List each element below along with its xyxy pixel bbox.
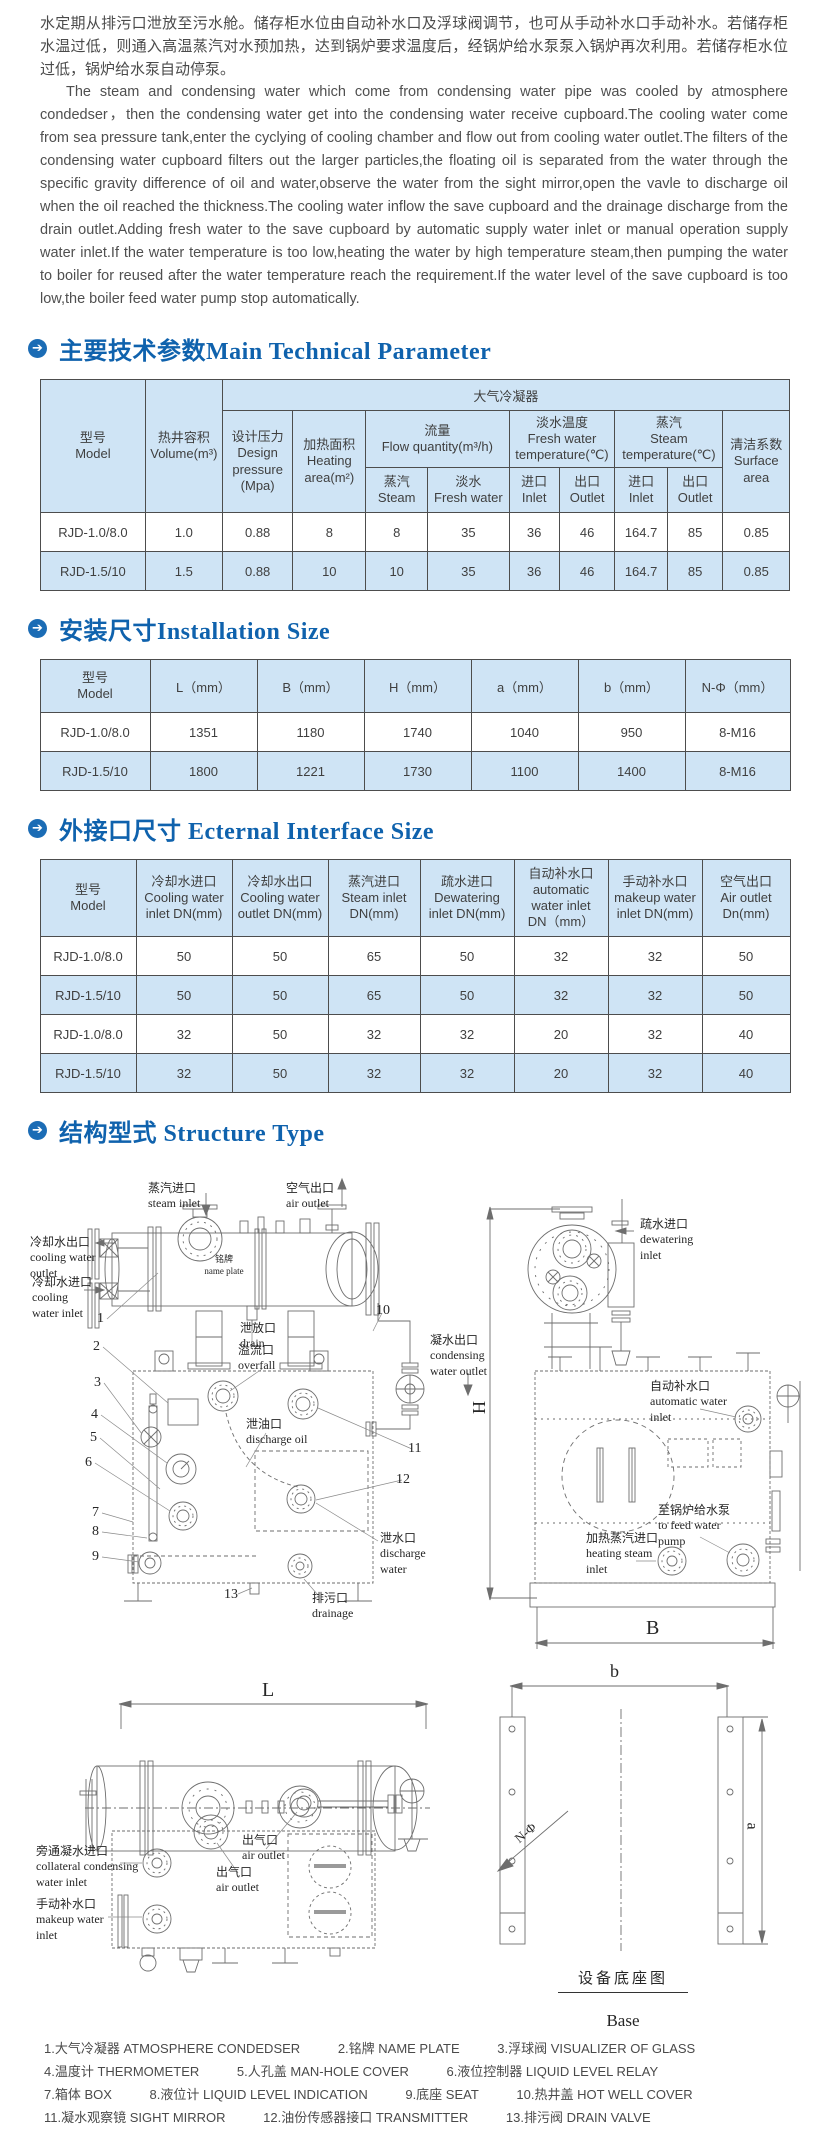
cell: 50 — [420, 937, 514, 976]
table-row: RJD-1.0/8.0 1.0 0.88 8 8 35 36 46 164.7 … — [41, 513, 790, 552]
technical-parameter-table: 型号 Model 热井容积 Volume(m³) 大气冷凝器 设计压力 Desi… — [40, 379, 790, 591]
header-cell: 蒸汽 Steam temperature(℃) — [615, 411, 723, 468]
cell: 20 — [514, 1054, 608, 1093]
structure-line-drawing — [0, 1151, 830, 2027]
legend-line: 7.箱体 BOX 8.液位计 LIQUID LEVEL INDICATION 9… — [44, 2083, 790, 2106]
header-cell: N-Φ（mm） — [685, 660, 790, 713]
cell: 40 — [702, 1015, 790, 1054]
header-cell: 淡水温度 Fresh water temperature(℃) — [509, 411, 615, 468]
section-title: 外接口尺寸 Ecternal Interface Size — [59, 811, 434, 846]
structure-drawings: 蒸汽进口 steam inlet 空气出口 air outlet 冷却水出口 c… — [0, 1151, 830, 2027]
part-number-11: 11 — [408, 1441, 421, 1457]
base-caption: 设备底座图 Base — [558, 1955, 688, 2047]
label-discharge-water: 泄水口 discharge water — [380, 1531, 452, 1577]
section-title: 主要技术参数Main Technical Parameter — [59, 331, 491, 366]
cell: 8-M16 — [685, 752, 790, 791]
cell: 32 — [136, 1054, 232, 1093]
cell: RJD-1.5/10 — [40, 752, 150, 791]
cell: 40 — [702, 1054, 790, 1093]
label-automatic-water-inlet: 自动补水口 automatic water inlet — [650, 1379, 760, 1425]
cell: 1221 — [257, 752, 364, 791]
part-number-7: 7 — [92, 1505, 99, 1521]
cell: 46 — [559, 513, 615, 552]
legend-item: 5.人孔盖 MAN-HOLE COVER — [237, 2064, 409, 2079]
cell: 50 — [232, 976, 328, 1015]
cell: 8 — [293, 513, 366, 552]
label-air-outlet-c1: 出气口 air outlet — [242, 1833, 285, 1864]
header-cell: 型号 Model — [40, 860, 136, 937]
label-air-outlet-c2: 出气口 air outlet — [216, 1865, 259, 1896]
header-cell: 出口 Outlet — [667, 468, 723, 513]
cell: 35 — [428, 513, 509, 552]
label-discharge-oil: 泄油口 discharge oil — [246, 1417, 307, 1448]
table-row: RJD-1.5/10 50 50 65 50 32 32 50 — [40, 976, 790, 1015]
cell: 32 — [608, 1015, 702, 1054]
label-overfall: 溢流口 overfall — [238, 1343, 275, 1374]
legend-item: 1.大气冷凝器 ATMOSPHERE CONDEDSER — [44, 2041, 300, 2056]
header-cell: 进口 Inlet — [509, 468, 559, 513]
header-cell: 型号 Model — [40, 660, 150, 713]
dimension-b: b — [610, 1661, 619, 1682]
intro-paragraph-en: The steam and condensing water which com… — [40, 81, 788, 311]
header-cell: 冷却水出口 Cooling water outlet DN(mm) — [232, 860, 328, 937]
section-heading-technical-parameter: ➔ 主要技术参数Main Technical Parameter — [28, 331, 830, 365]
legend-item: 6.液位控制器 LIQUID LEVEL RELAY — [446, 2064, 658, 2079]
section-heading-installation-size: ➔ 安装尺寸Installation Size — [28, 611, 830, 645]
cell: 10 — [293, 552, 366, 591]
part-number-1: 1 — [97, 1311, 104, 1327]
header-cell: 自动补水口 automatic water inlet DN（mm） — [514, 860, 608, 937]
cell: 1180 — [257, 713, 364, 752]
table-row: 型号 Model L（mm） B（mm） H（mm） a（mm） b（mm） N… — [40, 660, 790, 713]
part-number-2: 2 — [93, 1339, 100, 1355]
cell: 1.0 — [145, 513, 222, 552]
legend-line: 11.凝水观察镜 SIGHT MIRROR 12.油份传感器接口 TRANSMI… — [44, 2106, 790, 2129]
cell: 32 — [608, 1054, 702, 1093]
legend-item: 10.热井盖 HOT WELL COVER — [516, 2087, 692, 2102]
cell: RJD-1.0/8.0 — [40, 1015, 136, 1054]
cell: 35 — [428, 552, 509, 591]
cell: 50 — [136, 976, 232, 1015]
cell: 1730 — [364, 752, 471, 791]
intro-section: 水定期从排污口泄放至污水舱。储存柜水位由自动补水口及浮球阀调节，也可从手动补水口… — [0, 0, 830, 311]
cell: 50 — [232, 937, 328, 976]
header-cell: 蒸汽 Steam — [366, 468, 428, 513]
cell: 1351 — [150, 713, 257, 752]
table-row: RJD-1.0/8.0 50 50 65 50 32 32 50 — [40, 937, 790, 976]
cell: 0.88 — [222, 552, 293, 591]
label-dewatering-inlet: 疏水进口 dewatering inlet — [640, 1217, 724, 1263]
base-caption-cn: 设备底座图 — [558, 1970, 688, 1992]
header-cell: L（mm） — [150, 660, 257, 713]
dimension-B: B — [646, 1617, 659, 1640]
cell: 0.88 — [222, 513, 293, 552]
cell: 85 — [667, 552, 723, 591]
cell: 20 — [514, 1015, 608, 1054]
header-cell: 进口 Inlet — [615, 468, 667, 513]
legend-item: 13.排污阀 DRAIN VALVE — [506, 2110, 651, 2125]
dimension-H: H — [468, 1401, 489, 1414]
label-collateral-condensing-water-inlet: 旁通凝水进口 collateral condensing water inlet — [36, 1844, 171, 1890]
legend-item: 7.箱体 BOX — [44, 2087, 112, 2102]
parts-legend: 1.大气冷凝器 ATMOSPHERE CONDEDSER 2.铭牌 NAME P… — [44, 2037, 790, 2129]
header-cell: 大气冷凝器 — [222, 380, 789, 411]
section-heading-structure-type: ➔ 结构型式 Structure Type — [28, 1113, 830, 1147]
header-cell: H（mm） — [364, 660, 471, 713]
cell: 32 — [328, 1015, 420, 1054]
cell: 32 — [514, 937, 608, 976]
table-row: RJD-1.5/10 32 50 32 32 20 32 40 — [40, 1054, 790, 1093]
part-number-5: 5 — [90, 1430, 97, 1446]
cell: 32 — [136, 1015, 232, 1054]
arrow-circle-icon: ➔ — [28, 819, 47, 838]
legend-item: 11.凝水观察镜 SIGHT MIRROR — [44, 2110, 226, 2125]
label-heating-steam-inlet: 加热蒸汽进口 heating steam inlet — [586, 1531, 681, 1577]
cell: 85 — [667, 513, 723, 552]
cell: 32 — [420, 1054, 514, 1093]
cell: 0.85 — [723, 552, 790, 591]
cell: 950 — [578, 713, 685, 752]
header-cell: 蒸汽进口 Steam inlet DN(mm) — [328, 860, 420, 937]
cell: RJD-1.0/8.0 — [41, 513, 146, 552]
header-cell: 设计压力 Design pressure (Mpa) — [222, 411, 293, 513]
header-cell: a（mm） — [471, 660, 578, 713]
table-row: 型号 Model 冷却水进口 Cooling water inlet DN(mm… — [40, 860, 790, 937]
catalog-page: { "intro": { "cn": "水定期从排污口泄放至污水舱。储存柜水位由… — [0, 0, 830, 2076]
legend-item: 9.底座 SEAT — [405, 2087, 478, 2102]
legend-item: 8.液位计 LIQUID LEVEL INDICATION — [150, 2087, 368, 2102]
cell: 1100 — [471, 752, 578, 791]
cell: 32 — [420, 1015, 514, 1054]
header-cell: 空气出口 Air outlet Dn(mm) — [702, 860, 790, 937]
cell: 32 — [608, 976, 702, 1015]
header-cell: 疏水进口 Dewatering inlet DN(mm) — [420, 860, 514, 937]
header-cell: 手动补水口 makeup water inlet DN(mm) — [608, 860, 702, 937]
header-cell: B（mm） — [257, 660, 364, 713]
part-number-6: 6 — [85, 1455, 92, 1471]
label-drainage: 排污口 drainage — [312, 1591, 353, 1622]
header-cell: 型号 Model — [41, 380, 146, 513]
label-steam-inlet: 蒸汽进口 steam inlet — [148, 1181, 200, 1212]
cell: 46 — [559, 552, 615, 591]
part-number-12: 12 — [396, 1472, 410, 1488]
legend-item: 2.铭牌 NAME PLATE — [338, 2041, 460, 2056]
cell: 50 — [702, 976, 790, 1015]
cell: 65 — [328, 976, 420, 1015]
cell: 1400 — [578, 752, 685, 791]
cell: 36 — [509, 513, 559, 552]
dimension-a: a — [743, 1822, 761, 1829]
section-title: 安装尺寸Installation Size — [59, 611, 330, 646]
cell: 50 — [232, 1015, 328, 1054]
cell: 32 — [328, 1054, 420, 1093]
part-number-13: 13 — [224, 1587, 238, 1603]
base-caption-en: Base — [558, 2010, 688, 2032]
header-cell: b（mm） — [578, 660, 685, 713]
cell: 1800 — [150, 752, 257, 791]
intro-paragraph-cn: 水定期从排污口泄放至污水舱。储存柜水位由自动补水口及浮球阀调节，也可从手动补水口… — [40, 12, 788, 81]
header-cell: 冷却水进口 Cooling water inlet DN(mm) — [136, 860, 232, 937]
header-cell: 清洁系数 Surface area — [723, 411, 790, 513]
table-row: RJD-1.0/8.0 32 50 32 32 20 32 40 — [40, 1015, 790, 1054]
cell: 164.7 — [615, 552, 667, 591]
installation-size-table: 型号 Model L（mm） B（mm） H（mm） a（mm） b（mm） N… — [40, 659, 791, 791]
cell: 36 — [509, 552, 559, 591]
part-number-4: 4 — [91, 1407, 98, 1423]
legend-item: 4.温度计 THERMOMETER — [44, 2064, 199, 2079]
arrow-circle-icon: ➔ — [28, 339, 47, 358]
dimension-L: L — [262, 1679, 274, 1702]
header-cell: 淡水 Fresh water — [428, 468, 509, 513]
cell: 1040 — [471, 713, 578, 752]
external-interface-table: 型号 Model 冷却水进口 Cooling water inlet DN(mm… — [40, 859, 791, 1093]
header-cell: 热井容积 Volume(m³) — [145, 380, 222, 513]
table-row: RJD-1.5/10 1.5 0.88 10 10 35 36 46 164.7… — [41, 552, 790, 591]
cell: 8-M16 — [685, 713, 790, 752]
section-title: 结构型式 Structure Type — [59, 1113, 325, 1148]
label-condensing-water-outlet: 凝水出口 condensing water outlet — [430, 1333, 514, 1379]
part-number-10: 10 — [376, 1303, 390, 1319]
table-row: 型号 Model 热井容积 Volume(m³) 大气冷凝器 — [41, 380, 790, 411]
header-cell: 流量 Flow quantity(m³/h) — [366, 411, 509, 468]
label-cooling-water-inlet: 冷却水进口 cooling water inlet — [32, 1275, 122, 1321]
cell: 10 — [366, 552, 428, 591]
cell: 50 — [232, 1054, 328, 1093]
cell: RJD-1.0/8.0 — [40, 713, 150, 752]
header-cell: 出口 Outlet — [559, 468, 615, 513]
cell: 50 — [136, 937, 232, 976]
label-name-plate: 铭牌 name plate — [198, 1254, 250, 1277]
section-heading-external-interface: ➔ 外接口尺寸 Ecternal Interface Size — [28, 811, 830, 845]
cell: 1740 — [364, 713, 471, 752]
cell: 32 — [514, 976, 608, 1015]
part-number-3: 3 — [94, 1375, 101, 1391]
cell: 1.5 — [145, 552, 222, 591]
cell: 65 — [328, 937, 420, 976]
legend-line: 4.温度计 THERMOMETER 5.人孔盖 MAN-HOLE COVER 6… — [44, 2060, 790, 2083]
legend-item: 12.油份传感器接口 TRANSMITTER — [263, 2110, 468, 2125]
label-makeup-water-inlet: 手动补水口 makeup water inlet — [36, 1897, 131, 1943]
cell: RJD-1.5/10 — [40, 976, 136, 1015]
cell: 50 — [420, 976, 514, 1015]
table-row: RJD-1.5/10 1800 1221 1730 1100 1400 8-M1… — [40, 752, 790, 791]
cell: 164.7 — [615, 513, 667, 552]
table-row: RJD-1.0/8.0 1351 1180 1740 1040 950 8-M1… — [40, 713, 790, 752]
header-cell: 加热面积 Heating area(m²) — [293, 411, 366, 513]
cell: 8 — [366, 513, 428, 552]
cell: 50 — [702, 937, 790, 976]
arrow-circle-icon: ➔ — [28, 619, 47, 638]
cell: RJD-1.0/8.0 — [40, 937, 136, 976]
cell: RJD-1.5/10 — [41, 552, 146, 591]
part-number-9: 9 — [92, 1549, 99, 1565]
part-number-8: 8 — [92, 1524, 99, 1540]
cell: 0.85 — [723, 513, 790, 552]
arrow-circle-icon: ➔ — [28, 1121, 47, 1140]
label-air-outlet: 空气出口 air outlet — [286, 1181, 334, 1212]
cell: RJD-1.5/10 — [40, 1054, 136, 1093]
cell: 32 — [608, 937, 702, 976]
